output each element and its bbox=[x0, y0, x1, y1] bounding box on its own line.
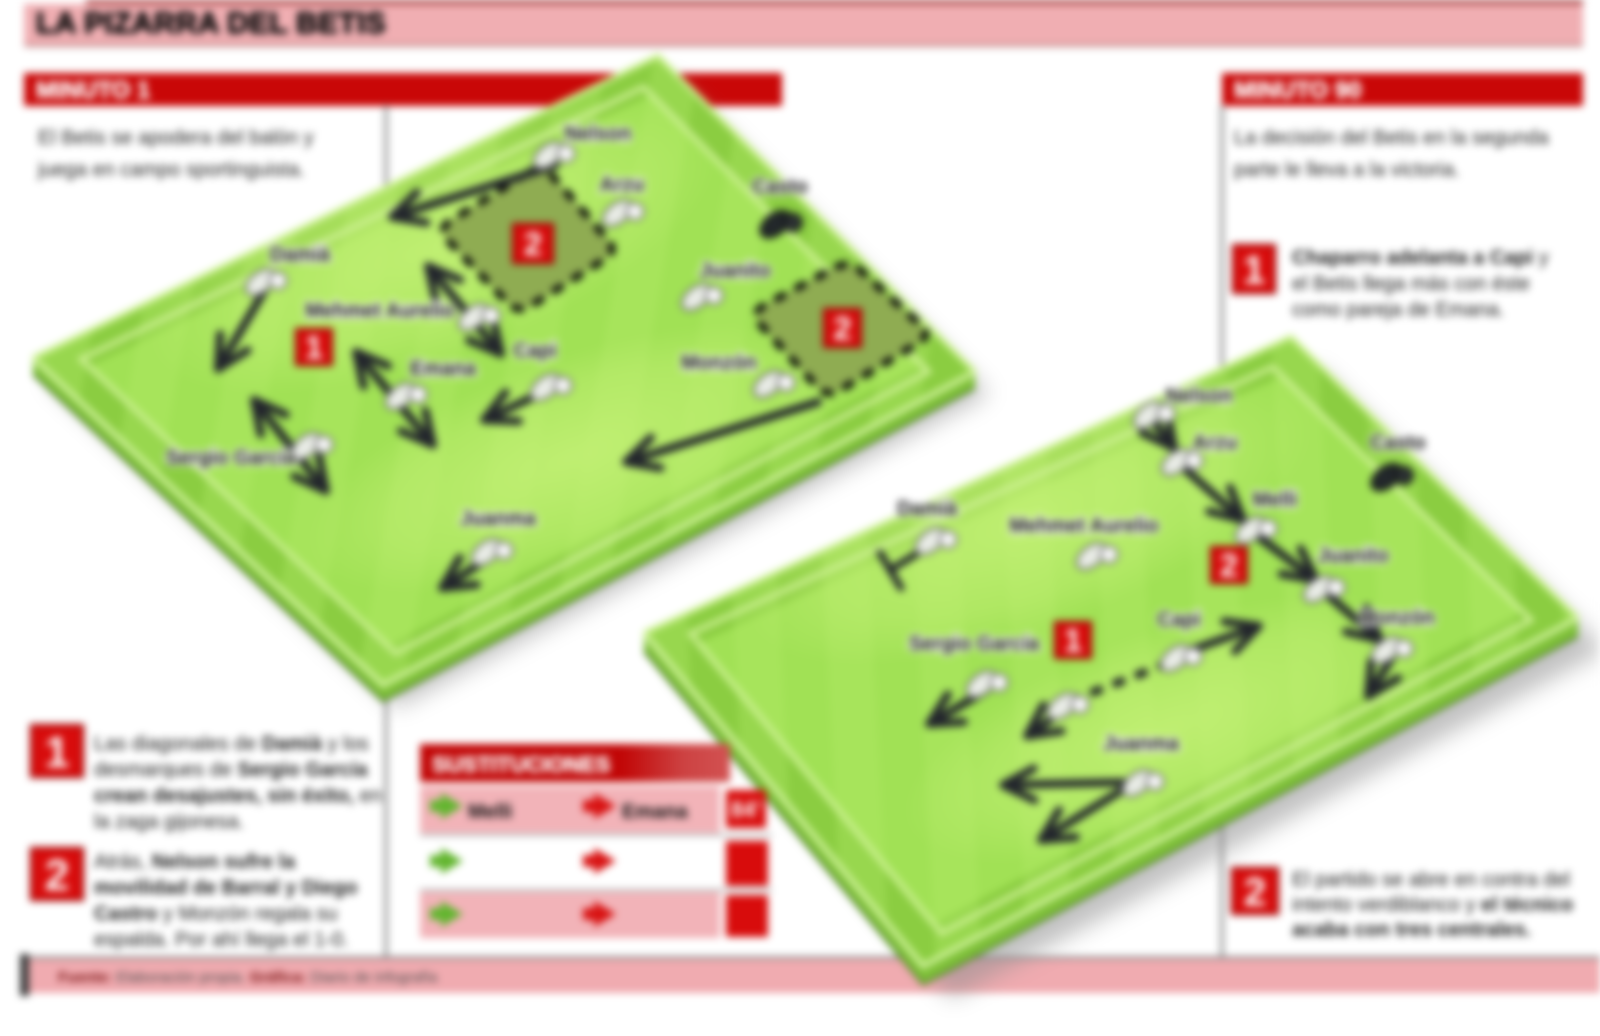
svg-text:Juanito: Juanito bbox=[1317, 545, 1388, 567]
svg-text:crean desajustes, sin éxito, e: crean desajustes, sin éxito, en bbox=[94, 785, 382, 807]
svg-text:juega en campo sportinguista.: juega en campo sportinguista. bbox=[37, 159, 305, 181]
svg-text:Melli: Melli bbox=[468, 801, 512, 823]
svg-text:Damià: Damià bbox=[270, 244, 331, 266]
svg-text:Mehmet Aurelio: Mehmet Aurelio bbox=[1009, 515, 1158, 537]
svg-text:1: 1 bbox=[45, 728, 69, 777]
svg-text:2: 2 bbox=[834, 311, 852, 347]
svg-text:Las diagonales de Damià y los: Las diagonales de Damià y los bbox=[94, 733, 369, 755]
svg-text:Nelson: Nelson bbox=[1166, 385, 1233, 407]
svg-text:Emana: Emana bbox=[410, 358, 476, 380]
svg-text:2: 2 bbox=[45, 851, 69, 900]
svg-text:Capi: Capi bbox=[1157, 609, 1200, 631]
svg-text:Chaparro adelanta a Capi y: Chaparro adelanta a Capi y bbox=[1292, 247, 1549, 269]
svg-text:Emana: Emana bbox=[622, 801, 688, 823]
svg-text:espalda. Por ahí llega el 1-0.: espalda. Por ahí llega el 1-0. bbox=[94, 929, 349, 951]
svg-text:Fuente: Elaboración propia. G: Fuente: Elaboración propia. Gráfica: Dia… bbox=[58, 969, 438, 986]
svg-text:El partido se abre en contra d: El partido se abre en contra del bbox=[1292, 869, 1570, 891]
svg-text:La decisión del Betis en la se: La decisión del Betis en la segunda bbox=[1234, 127, 1550, 149]
svg-text:Arzu: Arzu bbox=[600, 174, 644, 196]
svg-text:Nelson: Nelson bbox=[565, 123, 632, 145]
svg-text:Monzón: Monzón bbox=[681, 352, 757, 374]
svg-text:desmarques de Sergio García: desmarques de Sergio García bbox=[94, 759, 368, 781]
svg-text:Casto: Casto bbox=[752, 176, 808, 198]
svg-text:Arzu: Arzu bbox=[1193, 432, 1237, 454]
svg-text:parte le lleva a la victoria.: parte le lleva a la victoria. bbox=[1234, 159, 1460, 181]
svg-text:acaba con tres centrales.: acaba con tres centrales. bbox=[1292, 919, 1531, 941]
svg-text:Atrás, Nelson sufre la: Atrás, Nelson sufre la bbox=[94, 851, 296, 873]
svg-text:la zaga gijonesa.: la zaga gijonesa. bbox=[94, 811, 244, 833]
svg-text:2: 2 bbox=[524, 226, 542, 262]
svg-text:Juanito: Juanito bbox=[699, 260, 770, 282]
svg-text:Damià: Damià bbox=[897, 498, 958, 520]
svg-text:Mehmet Aurelio: Mehmet Aurelio bbox=[305, 300, 454, 322]
svg-text:2: 2 bbox=[1244, 870, 1266, 914]
svg-text:1: 1 bbox=[305, 330, 323, 366]
svg-text:movilidad de Barral y Diego: movilidad de Barral y Diego bbox=[94, 877, 357, 899]
svg-text:1: 1 bbox=[1064, 623, 1082, 659]
svg-text:SUSTITUCIONES: SUSTITUCIONES bbox=[432, 752, 610, 777]
svg-text:el Betis llega más con éste: el Betis llega más con éste bbox=[1292, 273, 1530, 295]
svg-text:El Betis se apodera del balón: El Betis se apodera del balón y bbox=[38, 127, 314, 149]
svg-text:Casto: Casto bbox=[1370, 432, 1426, 454]
svg-text:Monzón: Monzón bbox=[1359, 607, 1435, 629]
svg-text:MINUTO 1: MINUTO 1 bbox=[36, 77, 150, 104]
svg-text:84’: 84’ bbox=[731, 797, 762, 822]
svg-text:1: 1 bbox=[1243, 248, 1265, 292]
svg-text:Sergio García: Sergio García bbox=[909, 633, 1040, 655]
svg-text:MINUTO 90: MINUTO 90 bbox=[1234, 77, 1362, 104]
svg-text:Capi: Capi bbox=[513, 340, 556, 362]
svg-text:Sergio García: Sergio García bbox=[166, 447, 297, 469]
svg-text:Juanma: Juanma bbox=[460, 508, 536, 530]
svg-text:Melli: Melli bbox=[1253, 489, 1297, 511]
svg-text:Juanma: Juanma bbox=[1103, 733, 1179, 755]
svg-text:como pareja de Emana.: como pareja de Emana. bbox=[1292, 299, 1504, 321]
svg-text:2: 2 bbox=[1220, 548, 1238, 584]
svg-text:intento verdiblanco y el técni: intento verdiblanco y el técnico bbox=[1292, 894, 1573, 916]
svg-text:LA PIZARRA DEL BETIS: LA PIZARRA DEL BETIS bbox=[36, 7, 386, 40]
svg-text:Castro y Monzón regala su: Castro y Monzón regala su bbox=[94, 903, 337, 925]
